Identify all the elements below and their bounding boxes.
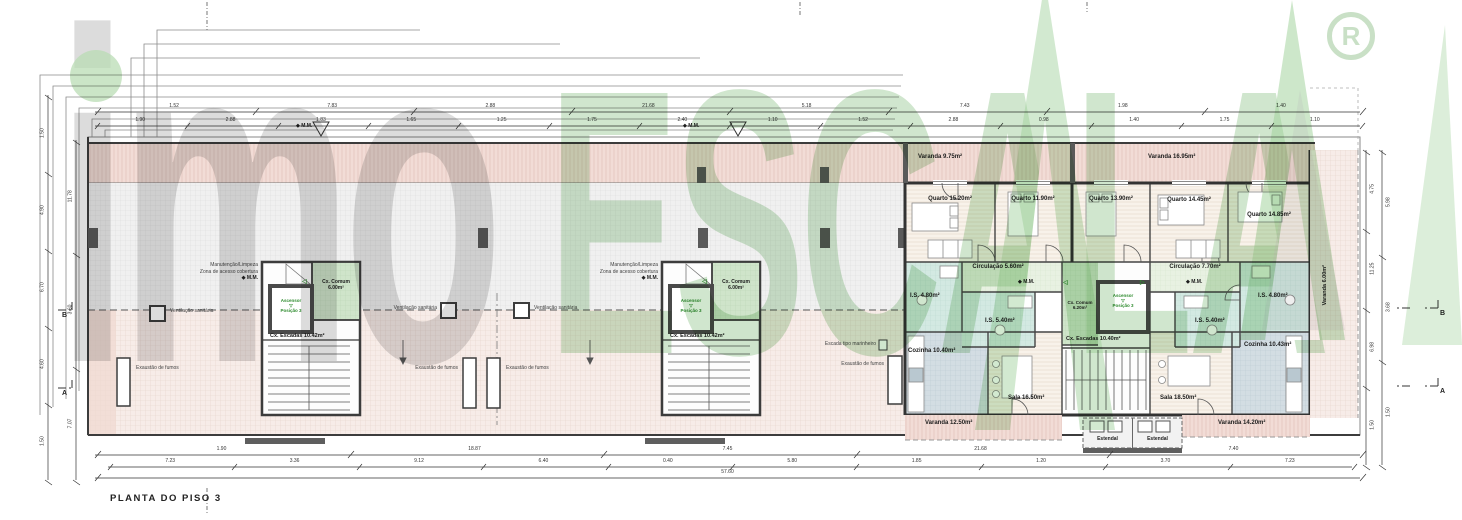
exaust-label-4: Exaustão de fumos xyxy=(806,362,884,368)
room-quarto-1485: Quarto 14.85m² xyxy=(1234,212,1304,219)
core2-comum-label: Cx. Comum 6.00m² xyxy=(712,280,760,292)
ship-ladder-label: Escada tipo marinheiro xyxy=(782,342,876,348)
dim-value: 1.83 xyxy=(276,117,366,123)
dim-value: 9.12 xyxy=(357,458,481,464)
dim-row-top-1: 1.527.832.8821.685.187.431.981.40 xyxy=(95,103,1360,109)
mm-marker-band-2: ◆ M.M. xyxy=(683,124,699,130)
central-door-icon-right: ▷ xyxy=(1140,280,1145,287)
room-circulacao-right: Circulação 7.70m² xyxy=(1155,264,1235,271)
dim-value: 7.23 xyxy=(108,458,232,464)
dim-value: 1.75 xyxy=(1179,117,1269,123)
apartments-block xyxy=(903,143,1310,418)
room-varanda-right-bottom: Varanda 14.20m² xyxy=(1218,420,1265,427)
lift-position: Posição 3 xyxy=(680,308,701,313)
floor-plan-sheet: Ventilação sanitária Ventilação sanitári… xyxy=(0,0,1462,520)
dim-col-left-2: 11.783.607.07 xyxy=(66,140,75,480)
room-quarto-1520: Quarto 15.20m² xyxy=(915,196,985,203)
dim-row-bottom-1: 1.9018.877.4521.687.40 xyxy=(95,446,1360,452)
lift-position: Posição 3 xyxy=(1112,303,1133,308)
room-is2-left: I.S. 5.40m² xyxy=(985,318,1015,325)
dim-value: 1.50 xyxy=(38,95,47,172)
room-quarto-1190: Quarto 11.90m² xyxy=(998,196,1068,203)
dim-value: 21.68 xyxy=(569,103,727,109)
dim-value: 7.23 xyxy=(1228,458,1352,464)
dim-value: 1.50 xyxy=(1384,360,1393,465)
dim-value: 7.40 xyxy=(1107,446,1360,452)
mm-marker-band-1: ◆ M.M. xyxy=(296,124,312,130)
dim-value: 2.88 xyxy=(908,117,998,123)
dim-value: 6.40 xyxy=(481,458,605,464)
room-sala-left: Sala 16.50m² xyxy=(1008,395,1044,402)
dim-value: 11.25 xyxy=(1368,229,1377,308)
mm-marker: ◆ M.M. xyxy=(158,275,258,282)
exaust-label-1: Exaustão de fumos xyxy=(136,366,179,372)
sheet-title: PLANTA DO PISO 3 xyxy=(110,493,222,504)
central-comum-label: Cx. Comum 6.20m² xyxy=(1062,300,1098,310)
dim-value: 6.98 xyxy=(1368,308,1377,387)
room-quarto-1390: Quarto 13.90m² xyxy=(1076,196,1146,203)
dim-value: 1.20 xyxy=(979,458,1103,464)
central-stairs-label: Cx. Escadas 10.40m² xyxy=(1066,336,1120,342)
room-sala-right: Sala 18.50m² xyxy=(1160,395,1196,402)
dim-value: 4.75 xyxy=(1368,150,1377,229)
level-markers xyxy=(313,122,746,136)
dim-value: 1.75 xyxy=(547,117,637,123)
dim-value: 1.65 xyxy=(366,117,456,123)
lift-position: Posição 3 xyxy=(280,308,301,313)
dim-value: 1.52 xyxy=(818,117,908,123)
core1-stairs-label: Cx. Escadas 10.42m² xyxy=(270,333,324,339)
dim-value: 7.83 xyxy=(253,103,411,109)
dim-value: 3.70 xyxy=(1103,458,1227,464)
dim-value: 3.60 xyxy=(66,253,75,366)
core1-door-icon: ◁ xyxy=(302,279,307,286)
mm-marker-apt-left: ◆ M.M. xyxy=(1018,280,1034,286)
dim-value: 1.90 xyxy=(95,117,185,123)
dim-value: 18.87 xyxy=(348,446,601,452)
core2-stairs-label: Cx. Escadas 10.42m² xyxy=(670,333,724,339)
vent-label-2: Ventilação sanitária xyxy=(372,306,437,312)
core2-lift-label: Ascensor ▽ Posição 3 xyxy=(672,298,710,314)
dim-row-bottom-2: 7.233.369.126.400.405.801.851.203.707.23 xyxy=(108,458,1352,464)
dim-value: 1.40 xyxy=(1089,117,1179,123)
dim-value: 0.40 xyxy=(606,458,730,464)
dim-col-right-2: 5.983.681.50 xyxy=(1384,150,1393,465)
dim-value: 7.43 xyxy=(886,103,1044,109)
core1-lift-label: Ascensor ▽ Posição 3 xyxy=(272,298,310,314)
dim-value: 0.98 xyxy=(999,117,1089,123)
dim-value: 3.36 xyxy=(232,458,356,464)
dim-value: 6.70 xyxy=(38,249,47,326)
dim-value: 1.90 xyxy=(95,446,348,452)
comum-area: 6.20m² xyxy=(1073,305,1087,310)
side-varanda xyxy=(1310,150,1358,418)
dim-total-bottom: 57.60 xyxy=(95,469,1360,475)
dim-row-top-2: 1.902.881.831.651.251.752.401.101.522.88… xyxy=(95,117,1360,123)
dim-value: 5.18 xyxy=(728,103,886,109)
comum-area: 6.00m² xyxy=(328,285,344,291)
mm-marker-apt-right: ◆ M.M. xyxy=(1186,280,1202,286)
dim-value: 1.10 xyxy=(1270,117,1360,123)
dim-value: 1.50 xyxy=(38,403,47,480)
room-varanda-left-bottom: Varanda 12.50m² xyxy=(925,420,972,427)
comum-area: 6.00m² xyxy=(728,285,744,291)
dim-value: 5.98 xyxy=(1384,150,1393,255)
vent-label-3: Ventilação sanitária xyxy=(534,306,577,312)
dim-col-right-1: 4.7511.256.981.50 xyxy=(1368,150,1377,465)
room-is1-right: I.S. 5.40m² xyxy=(1195,318,1225,325)
room-circulacao-left: Circulação 5.60m² xyxy=(958,264,1038,271)
vent-label-1: Ventilação sanitária xyxy=(170,309,213,315)
section-marker-a-right: A xyxy=(1440,388,1445,395)
exaust-label-3: Exaustão de fumos xyxy=(506,366,549,372)
section-marker-b-right: B xyxy=(1440,310,1445,317)
dim-value: 1.85 xyxy=(854,458,978,464)
maintenance-note-2: Manutenção/Limpeza Zona de acesso cobert… xyxy=(558,262,658,282)
dim-value: 11.78 xyxy=(66,140,75,253)
dim-value: 4.90 xyxy=(38,172,47,249)
room-cozinha-left: Cozinha 10.40m² xyxy=(908,348,955,355)
room-varanda-right-top: Varanda 16.95m² xyxy=(1148,154,1195,161)
dim-value: 1.25 xyxy=(456,117,546,123)
estendal-label-2: Estendal xyxy=(1135,437,1180,443)
core2-door-icon: ◁ xyxy=(702,279,707,286)
exaust-label-2: Exaustão de fumos xyxy=(400,366,458,372)
room-varanda-left-top: Varanda 9.75m² xyxy=(918,154,962,161)
dim-value: 5.80 xyxy=(730,458,854,464)
dim-value: 7.45 xyxy=(601,446,854,452)
room-cozinha-right: Cozinha 10.43m² xyxy=(1244,342,1291,349)
core1-comum-label: Cx. Comum 6.00m² xyxy=(312,280,360,292)
central-door-icon-left: ◁ xyxy=(1063,280,1068,287)
dim-value: 7.07 xyxy=(66,367,75,480)
plan-drawing xyxy=(0,0,1462,520)
maintenance-note-1: Manutenção/Limpeza Zona de acesso cobert… xyxy=(158,262,258,282)
roof-area-upper xyxy=(88,183,905,310)
dim-value: 1.98 xyxy=(1044,103,1202,109)
dim-col-left-1: 1.504.906.704.601.50 xyxy=(38,95,47,480)
dim-value: 1.40 xyxy=(1202,103,1360,109)
central-lift-label: Ascensor ▽ Posição 3 xyxy=(1100,293,1146,309)
dim-value: 1.10 xyxy=(728,117,818,123)
dim-value: 3.68 xyxy=(1384,255,1393,360)
room-varanda-side: Varanda 6.00m² xyxy=(1322,265,1328,305)
room-is2-right: I.S. 4.80m² xyxy=(1258,293,1288,300)
dim-value: 2.88 xyxy=(411,103,569,109)
estendal-label-1: Estendal xyxy=(1085,437,1130,443)
dim-value: 1.50 xyxy=(1368,386,1377,465)
room-quarto-1445: Quarto 14.45m² xyxy=(1154,197,1224,204)
dim-value: 1.52 xyxy=(95,103,253,109)
dim-value: 4.60 xyxy=(38,326,47,403)
room-is1-left: I.S. 4.80m² xyxy=(910,293,940,300)
dim-value: 2.40 xyxy=(637,117,727,123)
dim-value: 2.88 xyxy=(185,117,275,123)
mm-marker: ◆ M.M. xyxy=(558,275,658,282)
dim-value: 21.68 xyxy=(854,446,1107,452)
